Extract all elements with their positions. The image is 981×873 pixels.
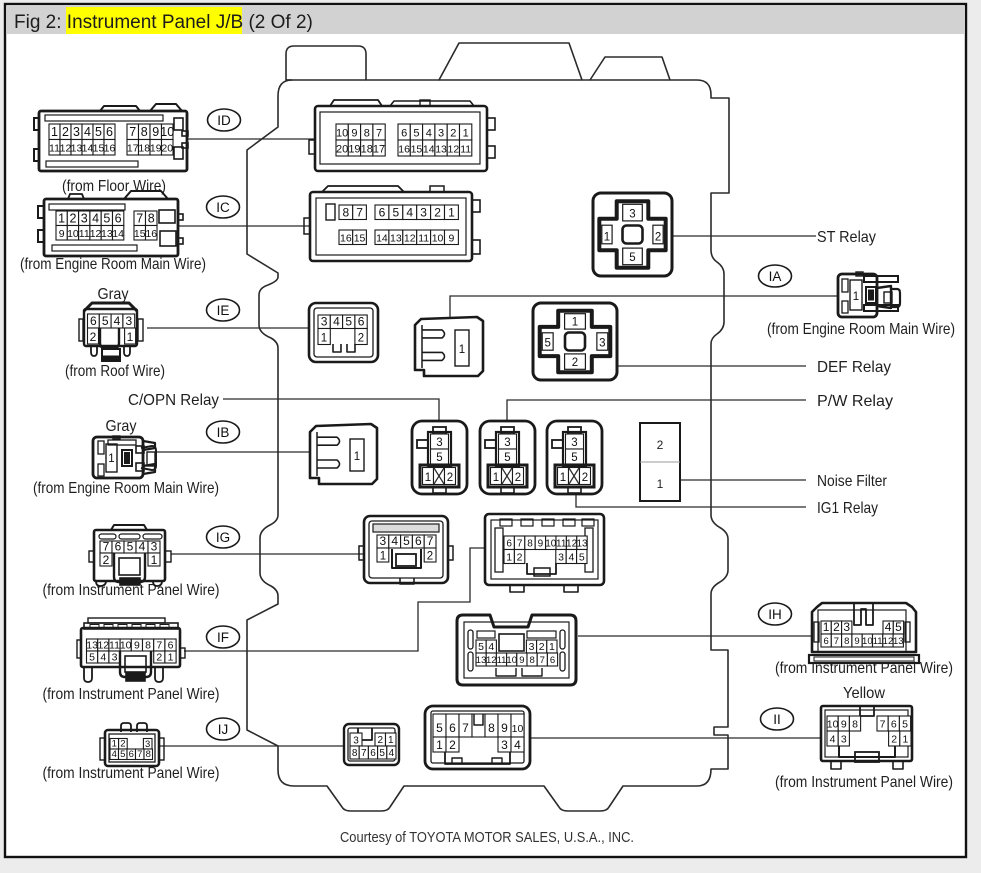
svg-text:4: 4 xyxy=(391,534,398,548)
svg-text:(from Instrument Panel Wire): (from Instrument Panel Wire) xyxy=(43,582,220,599)
svg-text:14: 14 xyxy=(423,143,435,155)
svg-text:13: 13 xyxy=(893,636,904,647)
svg-text:4: 4 xyxy=(84,125,91,139)
svg-text:II: II xyxy=(773,712,781,727)
svg-text:3: 3 xyxy=(571,437,577,449)
svg-text:1: 1 xyxy=(560,472,566,484)
svg-text:10: 10 xyxy=(506,655,517,666)
svg-text:1: 1 xyxy=(506,551,512,563)
svg-text:10: 10 xyxy=(862,636,873,647)
svg-text:5: 5 xyxy=(127,539,134,553)
svg-text:14: 14 xyxy=(112,228,124,240)
svg-text:1: 1 xyxy=(151,553,158,567)
svg-text:7: 7 xyxy=(129,125,136,139)
svg-text:3: 3 xyxy=(529,641,535,653)
svg-text:(from Engine Room Main Wire): (from Engine Room Main Wire) xyxy=(20,256,206,273)
svg-text:17: 17 xyxy=(373,143,385,155)
svg-text:13: 13 xyxy=(101,228,113,240)
svg-text:2: 2 xyxy=(447,472,453,484)
svg-text:8: 8 xyxy=(364,127,370,139)
svg-text:6: 6 xyxy=(129,749,134,760)
svg-text:13: 13 xyxy=(476,655,487,666)
svg-text:1: 1 xyxy=(657,477,664,491)
svg-text:20: 20 xyxy=(161,143,173,155)
svg-text:2: 2 xyxy=(515,472,521,484)
svg-text:7: 7 xyxy=(517,539,523,550)
svg-text:10: 10 xyxy=(160,125,174,139)
svg-text:5: 5 xyxy=(95,125,102,139)
svg-text:9: 9 xyxy=(152,125,159,139)
svg-text:12: 12 xyxy=(883,636,894,647)
svg-text:(from Engine Room Main Wire): (from Engine Room Main Wire) xyxy=(33,480,219,497)
svg-text:18: 18 xyxy=(138,143,150,155)
svg-text:16: 16 xyxy=(145,228,157,240)
svg-text:Yellow: Yellow xyxy=(843,685,885,702)
svg-text:1: 1 xyxy=(51,125,58,139)
svg-text:10: 10 xyxy=(336,127,348,139)
svg-text:2: 2 xyxy=(891,734,897,746)
svg-text:8: 8 xyxy=(527,539,533,550)
svg-text:5: 5 xyxy=(403,534,410,548)
svg-text:16: 16 xyxy=(398,143,410,155)
svg-text:1: 1 xyxy=(112,739,117,750)
svg-text:2: 2 xyxy=(657,438,664,452)
svg-text:3: 3 xyxy=(504,437,510,449)
svg-text:1: 1 xyxy=(58,211,65,225)
svg-text:2: 2 xyxy=(377,735,383,746)
svg-text:20: 20 xyxy=(336,143,348,155)
svg-text:5: 5 xyxy=(393,205,400,219)
svg-text:5: 5 xyxy=(345,315,352,329)
svg-text:Fig 2: Instrument Panel J/B (2: Fig 2: Instrument Panel J/B (2 Of 2) xyxy=(14,12,313,33)
svg-text:3: 3 xyxy=(558,551,564,563)
svg-text:13: 13 xyxy=(576,539,588,550)
svg-text:7: 7 xyxy=(427,534,434,548)
svg-text:(from Floor Wire): (from Floor Wire) xyxy=(62,178,166,195)
svg-text:5: 5 xyxy=(120,749,125,760)
svg-text:Courtesy of TOYOTA MOTOR SALES: Courtesy of TOYOTA MOTOR SALES, U.S.A., … xyxy=(340,830,634,846)
svg-text:19: 19 xyxy=(348,143,360,155)
svg-text:IA: IA xyxy=(769,269,782,284)
svg-text:2: 2 xyxy=(90,330,97,344)
svg-text:3: 3 xyxy=(112,651,118,663)
svg-text:IG1 Relay: IG1 Relay xyxy=(817,500,878,517)
svg-text:3: 3 xyxy=(843,620,850,634)
svg-text:5: 5 xyxy=(895,620,902,634)
svg-text:13: 13 xyxy=(86,639,98,651)
svg-text:1: 1 xyxy=(549,641,555,653)
svg-text:6: 6 xyxy=(115,539,122,553)
svg-text:8: 8 xyxy=(844,636,849,647)
svg-text:1: 1 xyxy=(604,231,610,243)
svg-text:ID: ID xyxy=(217,113,231,128)
svg-text:9: 9 xyxy=(449,232,455,244)
svg-text:2: 2 xyxy=(69,211,76,225)
svg-text:4: 4 xyxy=(514,738,521,752)
svg-text:15: 15 xyxy=(411,143,423,155)
svg-text:7: 7 xyxy=(834,636,839,647)
svg-text:4: 4 xyxy=(92,211,99,225)
svg-text:9: 9 xyxy=(134,639,140,651)
svg-text:11: 11 xyxy=(497,655,507,666)
svg-text:12: 12 xyxy=(90,228,102,240)
svg-text:2: 2 xyxy=(62,125,69,139)
svg-text:2: 2 xyxy=(833,620,840,634)
svg-text:3: 3 xyxy=(321,315,328,329)
svg-text:5: 5 xyxy=(103,211,110,225)
svg-text:1: 1 xyxy=(127,330,134,344)
svg-text:7: 7 xyxy=(137,749,142,760)
svg-text:6: 6 xyxy=(115,211,122,225)
svg-text:5: 5 xyxy=(102,314,109,328)
svg-text:7: 7 xyxy=(540,655,545,666)
svg-text:10: 10 xyxy=(67,228,79,240)
svg-text:P/W Relay: P/W Relay xyxy=(817,393,893,410)
svg-text:11: 11 xyxy=(109,639,120,651)
svg-text:9: 9 xyxy=(501,721,508,735)
svg-text:IH: IH xyxy=(768,607,782,622)
svg-text:5: 5 xyxy=(89,651,95,663)
svg-text:4: 4 xyxy=(885,620,892,634)
svg-text:13: 13 xyxy=(435,143,447,155)
svg-text:8: 8 xyxy=(148,211,155,225)
svg-text:(from Instrument Panel Wire): (from Instrument Panel Wire) xyxy=(775,774,953,791)
svg-text:15: 15 xyxy=(354,232,366,244)
svg-text:11: 11 xyxy=(873,636,883,647)
svg-text:3: 3 xyxy=(599,338,605,350)
svg-text:6: 6 xyxy=(449,721,456,735)
svg-text:9: 9 xyxy=(538,539,544,550)
svg-text:IC: IC xyxy=(216,200,230,215)
svg-text:5: 5 xyxy=(436,721,443,735)
svg-text:4: 4 xyxy=(488,641,494,653)
svg-text:5: 5 xyxy=(544,338,550,350)
svg-text:1: 1 xyxy=(354,451,360,463)
svg-text:6: 6 xyxy=(415,534,422,548)
svg-text:16: 16 xyxy=(340,232,352,244)
svg-text:6: 6 xyxy=(379,205,386,219)
svg-text:1: 1 xyxy=(853,291,859,303)
svg-text:4: 4 xyxy=(333,315,340,329)
svg-text:2: 2 xyxy=(434,205,441,219)
svg-text:9: 9 xyxy=(351,127,357,139)
svg-text:7: 7 xyxy=(462,721,469,735)
svg-text:6: 6 xyxy=(506,539,512,550)
svg-text:12: 12 xyxy=(486,655,497,666)
svg-text:2: 2 xyxy=(103,553,110,567)
svg-text:9: 9 xyxy=(841,719,847,731)
svg-text:1: 1 xyxy=(459,344,465,356)
svg-text:8: 8 xyxy=(343,205,350,219)
svg-text:2: 2 xyxy=(582,472,588,484)
svg-text:2: 2 xyxy=(358,333,364,345)
svg-text:2: 2 xyxy=(655,231,661,243)
svg-text:4: 4 xyxy=(114,314,121,328)
svg-text:2: 2 xyxy=(450,127,456,139)
svg-text:C/OPN Relay: C/OPN Relay xyxy=(128,392,219,409)
svg-text:8: 8 xyxy=(529,655,534,666)
svg-text:4: 4 xyxy=(406,205,413,219)
svg-text:3: 3 xyxy=(81,211,88,225)
svg-text:5: 5 xyxy=(902,719,908,731)
svg-text:15: 15 xyxy=(134,228,146,240)
svg-text:4: 4 xyxy=(100,651,106,663)
svg-text:13: 13 xyxy=(390,232,402,244)
svg-text:5: 5 xyxy=(436,452,442,464)
svg-text:6: 6 xyxy=(358,315,365,329)
svg-text:3: 3 xyxy=(73,125,80,139)
svg-text:2: 2 xyxy=(120,739,125,750)
svg-text:ST Relay: ST Relay xyxy=(817,229,876,246)
svg-text:1: 1 xyxy=(168,651,174,663)
svg-text:7: 7 xyxy=(356,205,363,219)
svg-text:2: 2 xyxy=(449,738,456,752)
svg-text:1: 1 xyxy=(448,205,455,219)
svg-text:8: 8 xyxy=(145,639,151,651)
svg-text:4: 4 xyxy=(139,539,146,553)
svg-text:8: 8 xyxy=(146,749,151,760)
svg-text:6: 6 xyxy=(106,125,113,139)
svg-text:2: 2 xyxy=(517,551,523,563)
svg-text:12: 12 xyxy=(448,143,460,155)
svg-text:(from Instrument Panel Wire): (from Instrument Panel Wire) xyxy=(775,660,953,677)
svg-text:5: 5 xyxy=(629,252,635,264)
svg-text:1: 1 xyxy=(436,738,443,752)
svg-text:7: 7 xyxy=(103,539,110,553)
svg-text:1: 1 xyxy=(321,333,327,345)
svg-text:5: 5 xyxy=(413,127,419,139)
svg-text:11: 11 xyxy=(49,143,60,155)
svg-text:Noise Filter: Noise Filter xyxy=(817,473,888,490)
svg-text:9: 9 xyxy=(59,228,65,240)
svg-text:16: 16 xyxy=(104,143,116,155)
svg-text:2: 2 xyxy=(539,641,545,653)
svg-text:Gray: Gray xyxy=(106,418,137,435)
svg-text:8: 8 xyxy=(488,721,495,735)
svg-text:(from Instrument Panel Wire): (from Instrument Panel Wire) xyxy=(43,765,220,782)
svg-text:7: 7 xyxy=(361,748,367,759)
svg-text:IE: IE xyxy=(217,303,230,318)
svg-text:3: 3 xyxy=(501,738,508,752)
svg-text:6: 6 xyxy=(90,314,97,328)
svg-text:8: 8 xyxy=(141,125,148,139)
svg-text:IF: IF xyxy=(217,630,229,645)
svg-text:9: 9 xyxy=(854,636,859,647)
svg-text:6: 6 xyxy=(168,639,174,651)
svg-text:10: 10 xyxy=(827,719,839,731)
svg-text:11: 11 xyxy=(418,232,429,244)
svg-text:9: 9 xyxy=(519,655,524,666)
svg-text:(from Engine Room Main Wire): (from Engine Room Main Wire) xyxy=(767,321,955,338)
svg-text:3: 3 xyxy=(353,736,359,747)
svg-text:2: 2 xyxy=(156,651,162,663)
svg-text:17: 17 xyxy=(127,143,139,155)
svg-text:6: 6 xyxy=(891,719,897,731)
svg-text:(from Roof Wire): (from Roof Wire) xyxy=(65,363,165,380)
svg-text:1: 1 xyxy=(902,734,908,746)
svg-text:14: 14 xyxy=(376,232,388,244)
svg-text:6: 6 xyxy=(824,636,829,647)
svg-text:10: 10 xyxy=(432,232,444,244)
svg-text:5: 5 xyxy=(579,551,585,563)
svg-text:DEF Relay: DEF Relay xyxy=(817,359,891,376)
svg-text:3: 3 xyxy=(436,437,442,449)
svg-text:4: 4 xyxy=(568,551,574,563)
svg-text:2: 2 xyxy=(572,357,578,369)
svg-text:3: 3 xyxy=(629,208,635,220)
svg-text:4: 4 xyxy=(830,734,836,746)
svg-text:(from Instrument Panel Wire): (from Instrument Panel Wire) xyxy=(43,686,220,703)
svg-text:7: 7 xyxy=(136,211,143,225)
svg-text:IJ: IJ xyxy=(218,722,229,737)
svg-text:3: 3 xyxy=(380,534,387,548)
svg-text:2: 2 xyxy=(427,551,433,563)
svg-text:4: 4 xyxy=(389,748,395,759)
svg-text:8: 8 xyxy=(852,719,858,731)
svg-text:18: 18 xyxy=(361,143,373,155)
svg-text:5: 5 xyxy=(571,452,577,464)
svg-text:11: 11 xyxy=(79,228,90,240)
svg-text:6: 6 xyxy=(550,655,555,666)
svg-text:7: 7 xyxy=(156,639,162,651)
svg-text:11: 11 xyxy=(460,143,471,155)
svg-text:1: 1 xyxy=(823,620,830,634)
svg-text:5: 5 xyxy=(478,641,484,653)
svg-text:3: 3 xyxy=(125,314,132,328)
svg-text:5: 5 xyxy=(504,452,510,464)
svg-text:10: 10 xyxy=(120,639,132,651)
svg-text:5: 5 xyxy=(379,748,385,759)
svg-text:12: 12 xyxy=(97,639,109,651)
svg-text:4: 4 xyxy=(112,749,117,760)
svg-text:6: 6 xyxy=(370,748,376,759)
svg-text:10: 10 xyxy=(512,723,524,735)
svg-text:IB: IB xyxy=(217,425,230,440)
svg-text:4: 4 xyxy=(426,127,432,139)
svg-text:1: 1 xyxy=(425,472,431,484)
svg-text:19: 19 xyxy=(150,143,162,155)
svg-text:7: 7 xyxy=(376,127,382,139)
svg-text:1: 1 xyxy=(388,735,394,746)
svg-text:IG: IG xyxy=(216,530,230,545)
svg-text:6: 6 xyxy=(401,127,407,139)
svg-text:1: 1 xyxy=(463,127,469,139)
svg-text:1: 1 xyxy=(572,317,578,329)
svg-text:3: 3 xyxy=(841,734,847,746)
svg-text:1: 1 xyxy=(380,551,386,563)
svg-text:Gray: Gray xyxy=(98,286,129,303)
svg-text:1: 1 xyxy=(108,453,114,465)
svg-text:8: 8 xyxy=(352,748,358,759)
svg-text:12: 12 xyxy=(404,232,416,244)
svg-text:3: 3 xyxy=(438,127,444,139)
svg-text:7: 7 xyxy=(880,719,886,731)
svg-text:1: 1 xyxy=(493,472,499,484)
svg-text:3: 3 xyxy=(151,539,158,553)
svg-text:3: 3 xyxy=(420,205,427,219)
